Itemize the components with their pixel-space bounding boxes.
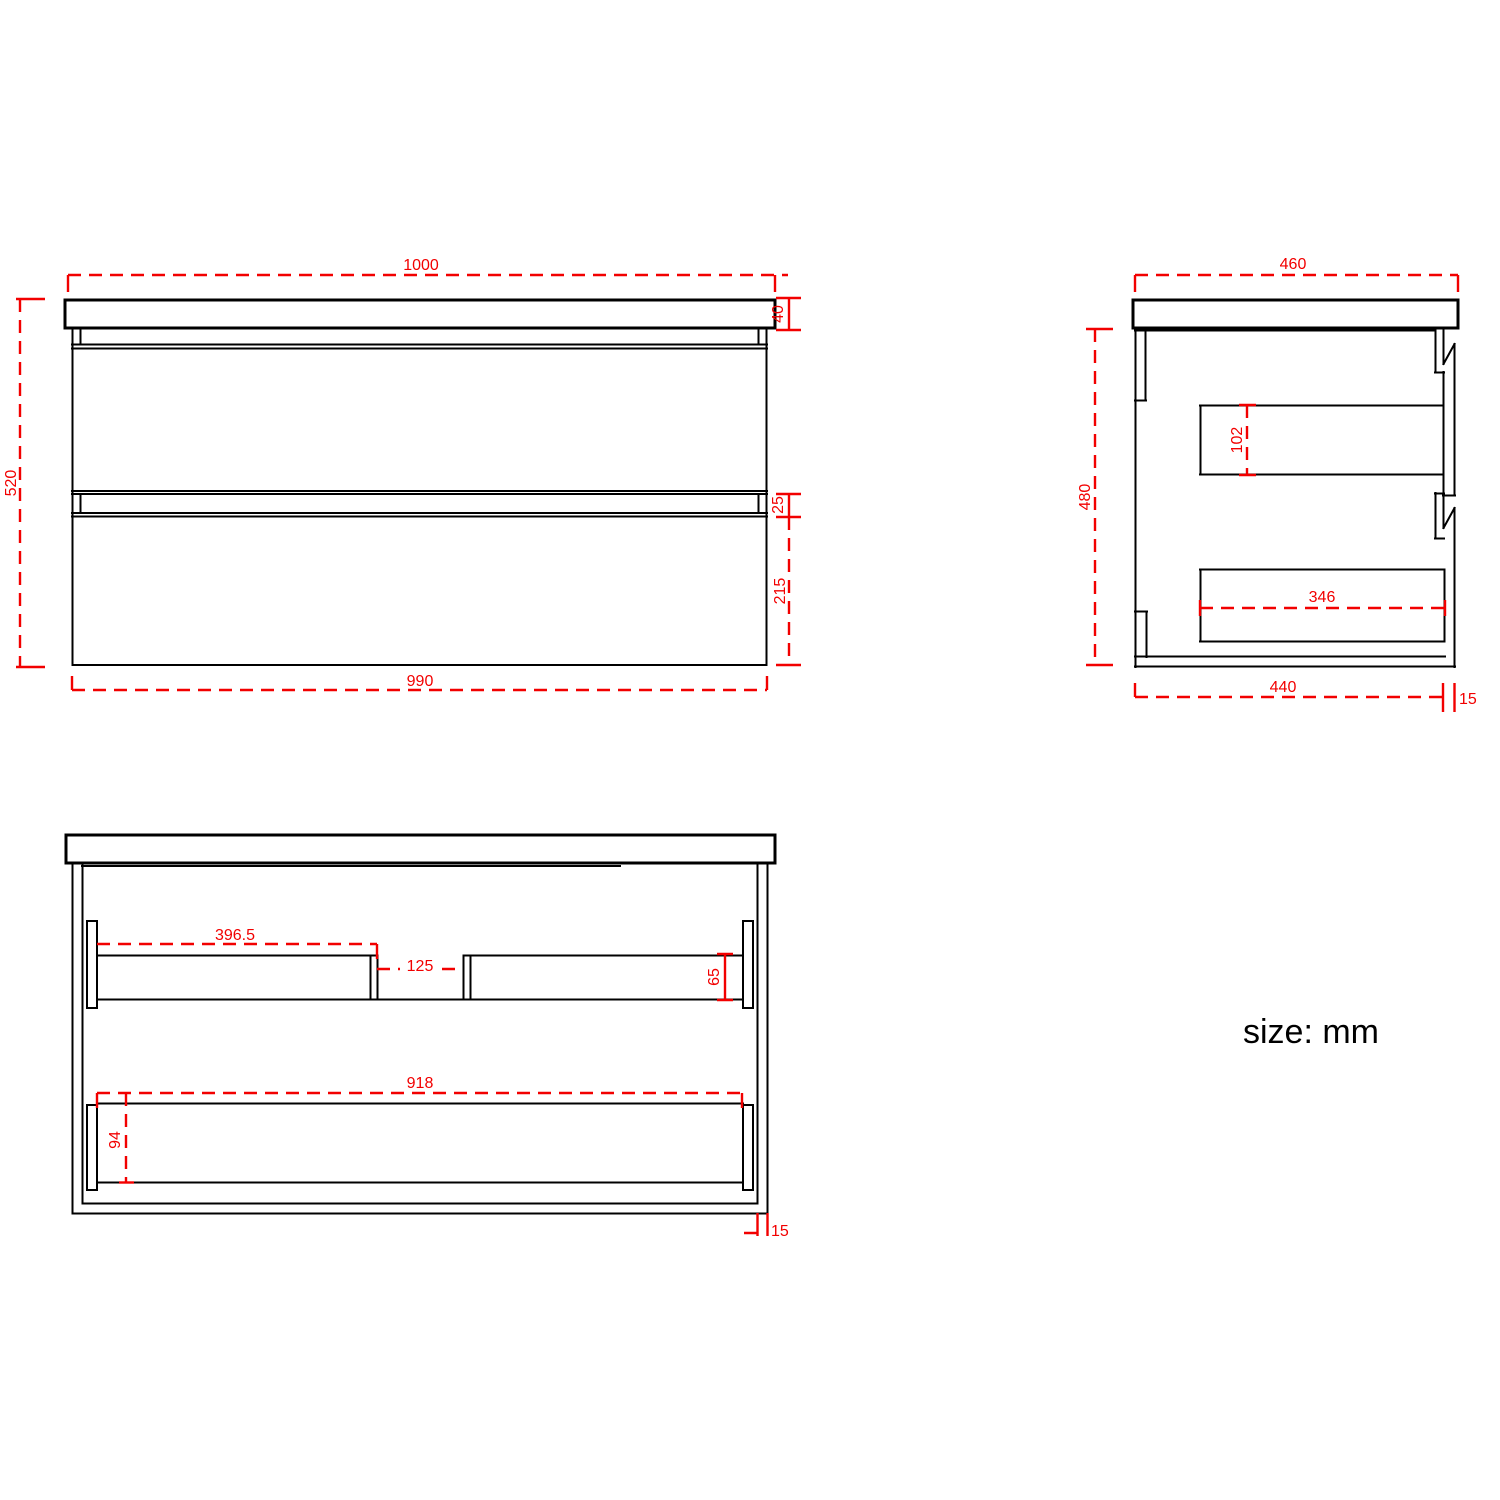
units-label: size: mm [1243, 1013, 1379, 1051]
side-view: 460 480 102 346 440 15 [1077, 256, 1477, 712]
countertop [65, 300, 775, 328]
upper-rail-left [97, 956, 378, 1000]
slide-bracket-lower-right [743, 1105, 753, 1190]
technical-drawing: 1000 520 40 25 215 990 [0, 0, 1500, 1500]
dim-countertop-thickness: 40 [770, 305, 787, 323]
dim-overall-depth: 460 [1280, 256, 1307, 273]
countertop-internal [66, 835, 775, 863]
slide-bracket-upper-left [87, 921, 97, 1008]
dim-overall-height: 520 [3, 470, 20, 497]
middle-recess-band [72, 494, 767, 513]
dim-cabinet-depth: 440 [1270, 679, 1297, 696]
slide-bracket-upper-right [743, 921, 753, 1008]
dim-drawer-gap: 25 [770, 496, 787, 514]
countertop-side [1133, 300, 1458, 328]
dim-center-gap: 125 [407, 958, 434, 975]
dim-cabinet-height: 480 [1077, 484, 1094, 511]
front-view: 1000 520 40 25 215 990 [3, 257, 801, 690]
dim-cabinet-width: 990 [407, 673, 434, 690]
side-carcass [1135, 328, 1455, 667]
hanging-bracket-upper [1435, 330, 1455, 373]
dim-lower-drawer-height: 215 [772, 578, 789, 605]
wall-rail-bottom-left [1135, 612, 1147, 658]
side-view-dimensions: 460 480 102 346 440 15 [1077, 256, 1477, 712]
wall-rail-top-left [1135, 330, 1146, 401]
dim-upper-rail-height: 65 [706, 968, 723, 986]
carcass [73, 328, 767, 665]
dim-lower-rail-height: 94 [107, 1131, 124, 1149]
top-recess-band [72, 328, 767, 345]
side-view-outline [1133, 300, 1458, 667]
dim-upper-left-drawer-width: 396.5 [215, 927, 255, 944]
internal-carcass [73, 863, 768, 1214]
dim-upper-drawer-back-height: 102 [1229, 427, 1246, 454]
front-view-outline [65, 300, 775, 665]
lower-rail [97, 1104, 743, 1183]
dim-side-panel-thickness: 15 [771, 1223, 789, 1240]
internal-view-dimensions: 396.5 125 65 918 94 15 [97, 927, 789, 1240]
dim-overall-width: 1000 [403, 257, 439, 274]
internal-view-outline [66, 835, 775, 1214]
front-view-dimensions: 1000 520 40 25 215 990 [3, 257, 801, 690]
upper-rail-right [464, 956, 744, 1000]
slide-bracket-lower-left [87, 1105, 97, 1190]
dim-lower-drawer-depth: 346 [1309, 589, 1336, 606]
internal-front-view: 396.5 125 65 918 94 15 [66, 835, 789, 1240]
dim-lower-drawer-width: 918 [407, 1075, 434, 1092]
dim-back-panel-gap: 15 [1459, 691, 1477, 708]
hanging-bracket-lower [1435, 493, 1455, 539]
